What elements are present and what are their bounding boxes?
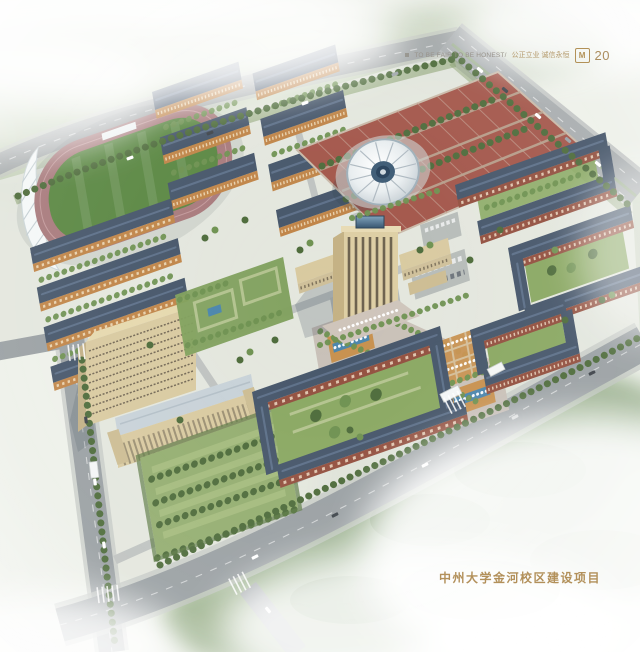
vignette: [0, 0, 640, 652]
slogan-mark-icon: [405, 53, 409, 57]
project-caption: 中州大学金河校区建设项目: [439, 569, 599, 586]
brand-logo-icon: M: [575, 48, 590, 63]
rendering-canvas: [0, 0, 640, 652]
page-number: 20: [595, 48, 610, 63]
campus-aerial-rendering: TO BE FAIR TO BE HONEST/ 公正立业 诚信永恒 M 20 …: [0, 0, 640, 652]
brand-slogan: TO BE FAIR TO BE HONEST/ 公正立业 诚信永恒 M 20: [405, 46, 610, 64]
slogan-text-en: TO BE FAIR TO BE HONEST/: [414, 52, 506, 59]
slogan-text-zh: 公正立业 诚信永恒: [512, 50, 570, 60]
